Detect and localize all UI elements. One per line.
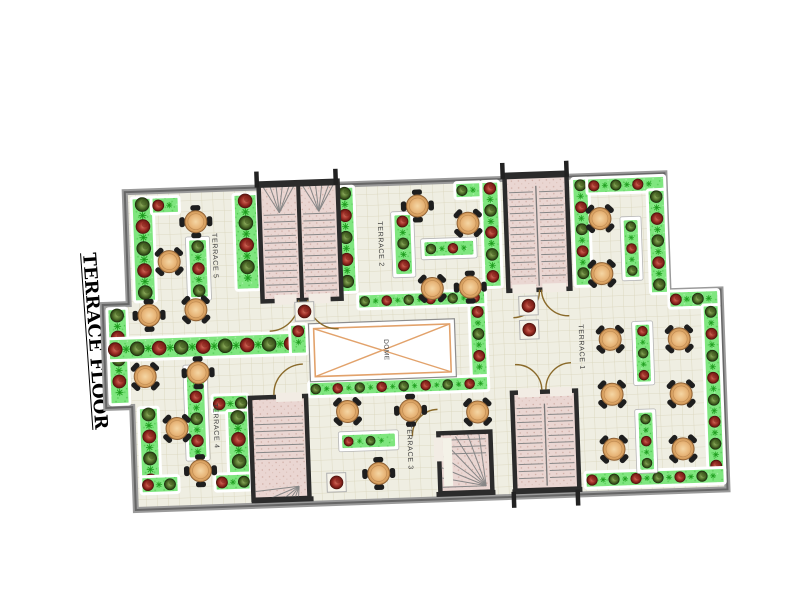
chair <box>195 454 205 460</box>
plant-sprig <box>470 187 475 192</box>
chair <box>179 217 185 227</box>
plant-sprig <box>167 344 174 351</box>
red-flower-bush <box>652 256 664 268</box>
plant-sprig <box>684 296 690 302</box>
planter-strip <box>215 473 252 491</box>
red-flower-bush <box>240 338 254 352</box>
plant-sprig <box>711 386 717 392</box>
plant-sprig <box>622 476 627 481</box>
green-bush <box>486 248 498 260</box>
plant-sprig <box>140 234 147 241</box>
plant-sprig <box>243 230 250 237</box>
green-bush <box>136 241 150 255</box>
door-opening <box>550 387 572 397</box>
stair-bottom-left <box>244 396 311 530</box>
green-bush <box>652 234 664 246</box>
red-flower-bush <box>709 416 721 428</box>
red-flower-bush <box>421 380 431 390</box>
wall-segment <box>257 183 340 186</box>
plant-sprig <box>476 342 482 348</box>
green-bush <box>404 295 414 305</box>
plant-sprig <box>194 427 200 433</box>
plant-sprig <box>193 405 199 411</box>
planter-strip <box>226 410 250 475</box>
plant-sprig <box>189 343 196 350</box>
planter-island <box>391 211 416 278</box>
chair <box>211 465 217 475</box>
plant-sprig <box>342 223 348 229</box>
planter-island <box>421 237 478 260</box>
planter-strip <box>455 182 482 199</box>
green-bush <box>355 382 365 392</box>
chair <box>373 457 383 463</box>
red-flower-bush <box>377 382 387 392</box>
flower-pot <box>519 320 539 340</box>
green-bush <box>399 381 409 391</box>
red-flower-bush <box>292 325 304 337</box>
plant-sprig <box>235 447 242 454</box>
wall-segment <box>436 492 495 494</box>
wall-segment <box>502 175 568 177</box>
plant-sprig <box>475 320 481 326</box>
chair <box>390 468 396 478</box>
chair <box>132 311 138 321</box>
chair <box>421 405 427 415</box>
planter-island <box>620 216 643 281</box>
chair <box>454 283 460 293</box>
plant-sprig <box>710 364 716 370</box>
plant-sprig <box>412 383 417 388</box>
plant-sprig <box>141 278 148 285</box>
plant-sprig <box>579 215 585 221</box>
red-flower-bush <box>706 328 718 340</box>
plant-sprig <box>146 444 153 451</box>
plant-sprig <box>156 482 162 488</box>
red-flower-bush <box>641 436 651 446</box>
chair <box>412 189 422 195</box>
red-flower-bush <box>330 476 343 489</box>
chair <box>196 482 206 488</box>
plant-sprig <box>344 267 350 273</box>
plant-sprig <box>116 367 123 374</box>
red-flower-bush <box>465 379 475 389</box>
plant-sprig <box>401 252 407 258</box>
plant-sprig <box>227 401 233 407</box>
green-bush <box>638 348 648 358</box>
plant-sprig <box>357 439 362 444</box>
plant-sprig <box>342 201 348 207</box>
plant-sprig <box>373 298 378 303</box>
chair <box>466 298 476 304</box>
planter-strip <box>481 181 503 288</box>
plant-sprig <box>629 235 634 240</box>
flower-pot <box>295 302 315 322</box>
plant-sprig <box>255 341 262 348</box>
flower-pot <box>519 296 539 316</box>
plant-sprig <box>114 323 121 330</box>
plant-sprig <box>487 196 493 202</box>
green-bush <box>707 350 719 362</box>
plant-sprig <box>706 295 712 301</box>
planter-island <box>635 409 658 474</box>
green-bush <box>262 337 276 351</box>
chair <box>191 233 201 239</box>
red-flower-bush <box>637 326 647 336</box>
green-bush <box>443 379 453 389</box>
wall-segment <box>512 489 582 491</box>
green-bush <box>650 190 662 202</box>
door-opening <box>274 294 296 305</box>
red-flower-bush <box>487 270 499 282</box>
red-flower-bush <box>238 194 252 208</box>
green-bush <box>710 438 722 450</box>
green-bush <box>626 221 636 231</box>
red-flower-bush <box>484 182 496 194</box>
green-bush <box>448 293 458 303</box>
red-flower-bush <box>152 341 166 355</box>
plant-sprig <box>654 205 660 211</box>
plant-sprig <box>580 259 586 265</box>
plant-sprig <box>478 381 483 386</box>
wall-post <box>254 171 259 187</box>
plant-sprig <box>710 473 715 478</box>
chair <box>428 200 434 210</box>
plant-sprig <box>195 255 201 261</box>
chair <box>160 310 166 320</box>
plant-sprig <box>230 479 236 485</box>
plant-sprig <box>708 320 714 326</box>
chair <box>413 217 423 223</box>
plant-sprig <box>709 342 715 348</box>
door-opening <box>518 388 540 398</box>
chair <box>144 326 154 332</box>
chair <box>207 216 213 226</box>
green-bush <box>484 204 496 216</box>
door-opening <box>276 392 302 402</box>
red-flower-bush <box>472 306 484 318</box>
wall-post <box>511 492 516 508</box>
green-bush <box>705 306 717 318</box>
plant-sprig <box>666 475 671 480</box>
green-bush <box>609 474 620 485</box>
red-flower-bush <box>670 294 682 306</box>
green-bush <box>164 478 176 490</box>
plant-sprig <box>579 237 585 243</box>
plant-sprig <box>195 449 201 455</box>
green-bush <box>640 414 650 424</box>
plant-sprig <box>434 382 439 387</box>
planter-strip <box>469 305 488 377</box>
chair <box>405 394 415 400</box>
plant-sprig <box>296 339 302 345</box>
terrace-floor-plan: DOMETERRACE 5TERRACE 2TERRACE 1TERRACE 4… <box>24 146 756 531</box>
plant-sprig <box>146 422 153 429</box>
planter-island <box>338 430 399 452</box>
door-opening <box>512 284 536 294</box>
flower-pot <box>327 473 347 493</box>
planter-strip <box>233 194 260 291</box>
plant-sprig <box>166 202 172 208</box>
red-flower-bush <box>136 219 150 233</box>
green-bush <box>142 408 156 422</box>
red-flower-bush <box>142 479 154 491</box>
chair <box>184 466 190 476</box>
green-bush <box>311 384 321 394</box>
plant-sprig <box>602 183 607 188</box>
red-flower-bush <box>382 295 392 305</box>
plant-sprig <box>461 245 466 250</box>
red-flower-bush <box>137 263 151 277</box>
red-flower-bush <box>631 473 642 484</box>
red-flower-bush <box>152 200 164 212</box>
chair <box>193 384 203 390</box>
plant-sprig <box>644 475 649 480</box>
red-flower-bush <box>216 477 228 489</box>
plant-sprig <box>640 340 645 345</box>
stair-bottom-right <box>512 391 579 491</box>
plant-sprig <box>379 438 384 443</box>
green-bush <box>191 413 203 425</box>
green-bush <box>218 339 232 353</box>
green-bush <box>456 185 467 196</box>
dome-label: DOME <box>382 339 390 361</box>
red-flower-bush <box>196 339 210 353</box>
red-flower-bush <box>231 432 245 446</box>
plant-sprig <box>145 345 152 352</box>
planter-strip <box>141 475 180 493</box>
red-flower-bush <box>298 305 311 318</box>
green-bush <box>697 471 708 482</box>
plant-sprig <box>400 230 406 236</box>
plant-sprig <box>655 249 661 255</box>
red-flower-bush <box>113 375 127 389</box>
plant-sprig <box>324 386 329 391</box>
chair <box>193 356 203 362</box>
door-opening <box>434 437 444 461</box>
red-flower-bush <box>192 262 204 274</box>
chair <box>362 469 368 479</box>
green-bush <box>232 454 246 468</box>
planter-strip <box>647 189 669 294</box>
plant-sprig <box>147 466 154 473</box>
red-flower-bush <box>191 435 203 447</box>
red-flower-bush <box>523 323 536 336</box>
plant-sprig <box>711 408 717 414</box>
red-flower-bush <box>344 437 354 447</box>
plant-sprig <box>116 389 123 396</box>
chair <box>181 368 187 378</box>
plant-sprig <box>656 271 662 277</box>
red-flower-bush <box>587 475 598 486</box>
plant-sprig <box>578 193 584 199</box>
green-bush <box>653 472 664 483</box>
plant-sprig <box>139 212 146 219</box>
green-bush <box>135 197 149 211</box>
plant-sprig <box>395 298 400 303</box>
chair <box>481 282 487 292</box>
wall-post <box>564 161 569 177</box>
green-bush <box>240 260 254 274</box>
plant-sprig <box>629 257 634 262</box>
green-bush <box>130 342 144 356</box>
green-bush <box>610 180 621 191</box>
plant-sprig <box>346 385 351 390</box>
plant-sprig <box>234 425 241 432</box>
plant-sprig <box>242 208 249 215</box>
plant-sprig <box>244 274 251 281</box>
red-flower-bush <box>239 238 253 252</box>
plant-sprig <box>712 430 718 436</box>
green-bush <box>238 476 250 488</box>
chair <box>394 406 400 416</box>
plant-sprig <box>643 428 648 433</box>
wall-segment <box>252 499 314 501</box>
chair <box>401 201 407 211</box>
wall-post <box>500 163 505 179</box>
red-flower-bush <box>473 350 485 362</box>
red-flower-bush <box>626 243 636 253</box>
plant-sprig <box>489 240 495 246</box>
red-flower-bush <box>448 243 458 253</box>
plant-sprig <box>123 346 130 353</box>
planter-strip <box>151 196 180 214</box>
green-bush <box>138 285 152 299</box>
green-bush <box>143 452 157 466</box>
plant-sprig <box>456 382 461 387</box>
red-flower-bush <box>398 260 410 272</box>
plant-sprig <box>654 227 660 233</box>
plant-sprig <box>243 252 250 259</box>
green-bush <box>692 293 704 305</box>
chair <box>374 484 384 490</box>
plant-sprig <box>368 385 373 390</box>
red-flower-bush <box>575 201 587 213</box>
red-flower-bush <box>577 245 589 257</box>
green-bush <box>360 296 370 306</box>
green-bush <box>578 267 590 279</box>
red-flower-bush <box>142 430 156 444</box>
stair-top-left <box>259 181 342 302</box>
plant-sprig <box>641 362 646 367</box>
chair <box>209 367 215 377</box>
chair <box>190 205 200 211</box>
green-bush <box>230 410 244 424</box>
red-flower-bush <box>651 212 663 224</box>
chair <box>143 299 153 305</box>
plant-sprig <box>600 477 605 482</box>
floor-plan-canvas: TERRACE FLOOR DOMETERRACE 5TERRACE 2TERR… <box>0 0 800 600</box>
wall-post <box>333 169 338 185</box>
plant-sprig <box>141 256 148 263</box>
plant-sprig <box>390 384 395 389</box>
planter-island <box>632 321 655 386</box>
plant-sprig <box>624 182 629 187</box>
green-bush <box>473 328 485 340</box>
plant-sprig <box>713 452 719 458</box>
plant-sprig <box>477 364 483 370</box>
stair-top-right <box>504 173 570 291</box>
plant-sprig <box>196 277 202 283</box>
green-bush <box>110 309 124 323</box>
red-flower-bush <box>639 370 649 380</box>
green-bush <box>574 179 586 191</box>
plant-sprig <box>644 450 649 455</box>
green-bush <box>708 394 720 406</box>
plant-sprig <box>490 262 496 268</box>
red-flower-bush <box>675 472 686 483</box>
green-bush <box>192 241 204 253</box>
green-bush <box>426 244 436 254</box>
green-bush <box>239 216 253 230</box>
green-bush <box>642 458 652 468</box>
green-bush <box>653 278 665 290</box>
plant-sprig <box>211 343 218 350</box>
green-bush <box>627 265 637 275</box>
red-flower-bush <box>397 216 409 228</box>
green-bush <box>366 436 376 446</box>
red-flower-bush <box>588 180 599 191</box>
green-bush <box>397 238 409 250</box>
plant-sprig <box>277 340 284 347</box>
floor-plan-drawing: DOMETERRACE 5TERRACE 2TERRACE 1TERRACE 4… <box>24 146 756 531</box>
red-flower-bush <box>108 342 122 356</box>
red-flower-bush <box>632 179 643 190</box>
green-bush <box>193 284 205 296</box>
plant-sprig <box>488 218 494 224</box>
red-flower-bush <box>522 299 535 312</box>
plant-sprig <box>646 181 651 186</box>
planter-island <box>185 236 211 301</box>
red-flower-bush <box>707 372 719 384</box>
plant-sprig <box>439 246 444 251</box>
green-bush <box>235 397 247 409</box>
chair <box>465 271 475 277</box>
red-flower-bush <box>333 383 343 393</box>
plant-sprig <box>233 342 240 349</box>
red-flower-bush <box>485 226 497 238</box>
wall-post <box>575 489 580 505</box>
door-opening <box>542 283 566 293</box>
plant-sprig <box>343 245 349 251</box>
red-flower-bush <box>190 391 202 403</box>
plant-sprig <box>688 474 693 479</box>
green-bush <box>174 340 188 354</box>
green-bush <box>576 223 588 235</box>
planter-strip <box>289 324 307 355</box>
